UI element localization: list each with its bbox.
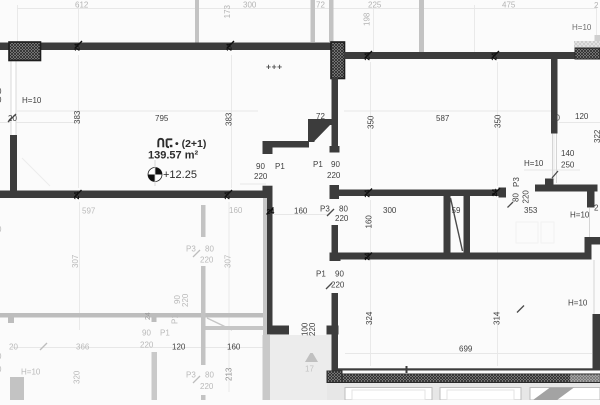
svg-text:160: 160 [227, 343, 241, 352]
svg-text:P1: P1 [160, 329, 170, 338]
svg-text:2: 2 [594, 204, 599, 213]
svg-text:322: 322 [593, 129, 600, 143]
svg-text:P1: P1 [171, 314, 180, 324]
svg-text:+12.25: +12.25 [163, 169, 197, 181]
svg-text:475: 475 [502, 1, 516, 10]
svg-text:213: 213 [225, 367, 234, 381]
svg-text:225: 225 [368, 1, 382, 10]
svg-text:587: 587 [436, 114, 450, 123]
svg-text:160: 160 [229, 206, 243, 215]
svg-text:20: 20 [9, 343, 18, 352]
svg-text:350: 350 [367, 115, 376, 129]
svg-text:220: 220 [254, 172, 268, 181]
svg-text:220: 220 [200, 256, 214, 265]
svg-text:H=10: H=10 [572, 23, 592, 32]
svg-text:353: 353 [524, 206, 538, 215]
svg-text:220: 220 [308, 322, 317, 336]
svg-text:+++: +++ [266, 62, 283, 72]
svg-text:139.57 m²: 139.57 m² [148, 150, 198, 162]
svg-text:P3: P3 [186, 245, 196, 254]
svg-text:220: 220 [140, 341, 154, 350]
svg-text:80: 80 [339, 205, 348, 214]
svg-text:220: 220 [522, 190, 531, 204]
svg-text:220: 220 [327, 171, 341, 180]
svg-text:699: 699 [459, 345, 473, 354]
svg-text:160: 160 [365, 215, 374, 229]
svg-text:• (2+1): • (2+1) [175, 138, 206, 150]
svg-text:300: 300 [243, 1, 257, 10]
svg-text:P1: P1 [316, 270, 326, 279]
svg-text:220: 220 [200, 382, 214, 391]
svg-text:366: 366 [76, 343, 90, 352]
svg-text:320: 320 [73, 370, 82, 384]
svg-text:P3: P3 [512, 177, 521, 187]
svg-text:120: 120 [172, 343, 186, 352]
svg-text:383: 383 [73, 110, 82, 124]
svg-text:307: 307 [224, 254, 233, 268]
svg-text:H=10: H=10 [21, 368, 41, 377]
svg-text:17: 17 [305, 365, 314, 374]
svg-text:20: 20 [8, 114, 17, 123]
svg-text:P3: P3 [186, 371, 196, 380]
svg-text:24: 24 [145, 312, 152, 320]
svg-text:173: 173 [223, 4, 232, 18]
svg-text:80: 80 [205, 371, 214, 380]
svg-text:H=10: H=10 [524, 159, 544, 168]
svg-text:P1: P1 [313, 160, 323, 169]
svg-text:59: 59 [452, 206, 461, 215]
svg-text:220: 220 [335, 214, 349, 223]
svg-text:795: 795 [155, 114, 169, 123]
svg-text:H=10: H=10 [22, 96, 42, 105]
svg-text:300: 300 [383, 206, 397, 215]
svg-text:160: 160 [294, 207, 308, 216]
svg-text:P1: P1 [275, 162, 285, 171]
svg-text:72: 72 [316, 112, 325, 121]
svg-text:220: 220 [181, 293, 190, 307]
svg-text:P3: P3 [320, 205, 330, 214]
svg-text:250: 250 [561, 161, 575, 170]
svg-text:80: 80 [205, 245, 214, 254]
svg-text:120: 120 [575, 112, 589, 121]
svg-text:2: 2 [594, 1, 599, 10]
svg-text:90: 90 [335, 270, 344, 279]
svg-text:597: 597 [82, 207, 96, 216]
svg-text:90: 90 [142, 329, 151, 338]
svg-text:90: 90 [331, 160, 340, 169]
svg-text:72: 72 [316, 1, 325, 10]
svg-text:140: 140 [561, 149, 575, 158]
svg-text:H=10: H=10 [570, 211, 590, 220]
svg-text:20: 20 [551, 114, 560, 123]
svg-text:198: 198 [363, 12, 372, 26]
svg-text:307: 307 [71, 254, 80, 268]
svg-text:350: 350 [494, 114, 503, 128]
svg-text:90: 90 [256, 162, 265, 171]
svg-text:220: 220 [331, 281, 345, 290]
svg-text:383: 383 [225, 112, 234, 126]
svg-text:80: 80 [512, 193, 521, 202]
svg-text:H=10: H=10 [568, 299, 588, 308]
svg-text:324: 324 [365, 311, 374, 325]
svg-text:314: 314 [493, 311, 502, 325]
svg-text:612: 612 [75, 1, 89, 10]
